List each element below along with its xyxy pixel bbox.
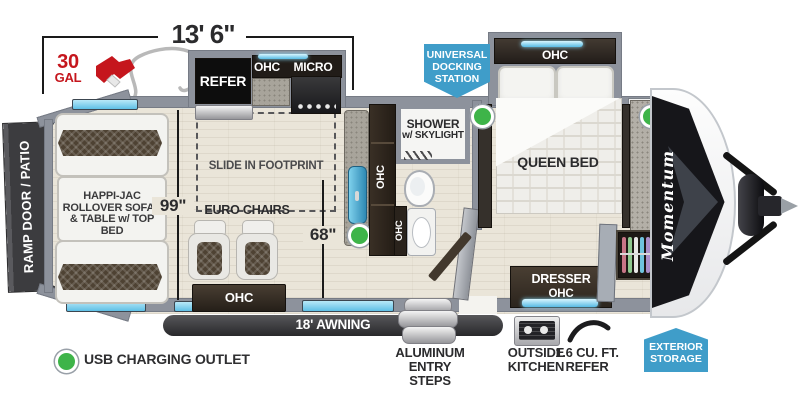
steps-label-line1: ALUMINUM: [390, 346, 470, 360]
bathroom-sink: [407, 208, 436, 256]
entry-steps-label: ALUMINUM ENTRY STEPS: [390, 346, 470, 387]
refrigerator: REFER: [195, 58, 251, 104]
shower: SHOWER w/ SKYLIGHT: [396, 104, 470, 164]
outside-refer-label: 1.6 CU. FT. REFER: [548, 346, 626, 374]
hitch-coupler: [758, 196, 782, 216]
slide-footprint-label: SLIDE IN FOOTPRINT: [198, 160, 334, 172]
stove: [291, 76, 341, 114]
storage-badge-line2: STORAGE: [644, 353, 708, 365]
window-bottom-mid: [302, 300, 394, 312]
pantry-ohc-label: OHC: [376, 152, 390, 202]
kitchen-ohc-light: [258, 54, 308, 59]
happijac-line3: & TABLE w/ TOP BED: [59, 214, 165, 237]
euro-chair-right: [236, 220, 278, 280]
hanger: [634, 237, 638, 273]
happijac-label: HAPPI-JAC ROLLOVER SOFAS & TABLE w/ TOP …: [59, 191, 165, 238]
sofa-top-cushion: [58, 130, 162, 156]
sofa-bottom-cushion: [58, 264, 162, 290]
grill-knob: [524, 326, 532, 334]
usb-charging-outlet-dot: [471, 105, 494, 128]
slide-footprint-outline: SLIDE IN FOOTPRINT: [196, 112, 336, 212]
storage-badge-line1: EXTERIOR: [644, 341, 708, 353]
usb-legend-label: USB CHARGING OUTLET: [84, 352, 284, 367]
docking-station-badge: UNIVERSAL DOCKING STATION: [424, 44, 490, 98]
vanity-ohc-label: OHC: [395, 212, 406, 250]
outside-kitchen-icon: [514, 316, 560, 346]
orefer-label-line1: 1.6 CU. FT.: [548, 346, 626, 360]
bed-ohc-light: [521, 41, 583, 47]
hanger: [628, 237, 632, 273]
queen-bed-label: QUEEN BED: [506, 155, 610, 170]
length-dim-tick-right: [352, 36, 354, 90]
stove-knobs: [296, 103, 336, 110]
docking-badge-line1: UNIVERSAL: [424, 49, 490, 61]
window-rear-top: [72, 99, 138, 110]
kitchen-counter-top: [252, 78, 290, 106]
refer-label: REFER: [195, 74, 251, 89]
bedroom-slide: OHC: [488, 32, 622, 106]
happijac-line1: HAPPI-JAC: [59, 191, 165, 203]
bed-ohc-label: OHC: [494, 49, 616, 62]
floorplan: 13' 6" 30 GAL RAMP DOOR / PATIO SLIDE IN…: [0, 0, 800, 400]
hanger: [640, 237, 644, 273]
ramp-door-label: RAMP DOOR / PATIO: [17, 131, 44, 284]
euro-chairs-label: EURO CHAIRS: [202, 204, 292, 217]
pantry-cabinet: OHC: [369, 104, 396, 256]
faucet: [355, 191, 359, 201]
steps-label-line2: ENTRY STEPS: [390, 360, 470, 388]
brand-logo: Momentum: [660, 122, 682, 288]
docking-badge-line3: STATION: [424, 73, 490, 85]
docking-badge-line2: DOCKING: [424, 61, 490, 73]
chair-seat: [245, 242, 270, 275]
micro-label: MICRO: [287, 61, 339, 74]
shower-label-line1: SHOWER: [401, 118, 465, 131]
grill-knob: [540, 326, 548, 334]
chair-seat: [197, 242, 222, 275]
toilet: [404, 170, 435, 207]
orefer-label-line2: REFER: [548, 360, 626, 374]
length-dim-tick-left: [42, 36, 44, 94]
exterior-storage-badge: EXTERIOR STORAGE: [644, 328, 708, 372]
pantry-shelf-line: [371, 142, 394, 144]
dinette-table: HAPPI-JAC ROLLOVER SOFAS & TABLE w/ TOP …: [57, 176, 167, 242]
hanger: [622, 237, 626, 273]
closet-side-cabinet: [597, 224, 618, 303]
usb-legend-dot: [55, 350, 78, 373]
refer-drawer: [195, 105, 253, 120]
entry-steps-icon: [398, 298, 456, 344]
kitchen-sink: [348, 166, 367, 224]
pantry-shelf-line: [371, 204, 394, 206]
length-dim-line-right: [246, 36, 354, 38]
outside-refer-icon: [566, 314, 612, 344]
usb-charging-outlet-dot: [348, 224, 371, 247]
rear-wall: [44, 119, 53, 293]
entertainment-ohc-label: OHC: [192, 291, 286, 305]
vanity-cabinet: OHC: [394, 206, 407, 256]
toilet-bowl: [410, 177, 425, 196]
shower-label-line2: w/ SKYLIGHT: [401, 131, 465, 142]
nightstand-right: [622, 104, 630, 228]
euro-chair-left: [188, 220, 230, 280]
slide-dim-label: 99": [152, 197, 194, 215]
shower-head-marks: [404, 151, 432, 160]
aisle-dim-label: 68": [303, 226, 343, 244]
dresser-light: [522, 299, 598, 307]
kitchen-ohc-label: OHC: [248, 61, 286, 74]
fuel-unit-label: GAL: [48, 71, 88, 85]
kitchen-bumpout: REFER OHC MICRO: [188, 50, 346, 108]
sink-bowl: [412, 217, 431, 248]
hitch-coupler-tip: [781, 198, 798, 214]
step: [402, 326, 456, 344]
entertainment-ohc: OHC: [192, 284, 286, 312]
length-dim-line-left: [42, 36, 158, 38]
